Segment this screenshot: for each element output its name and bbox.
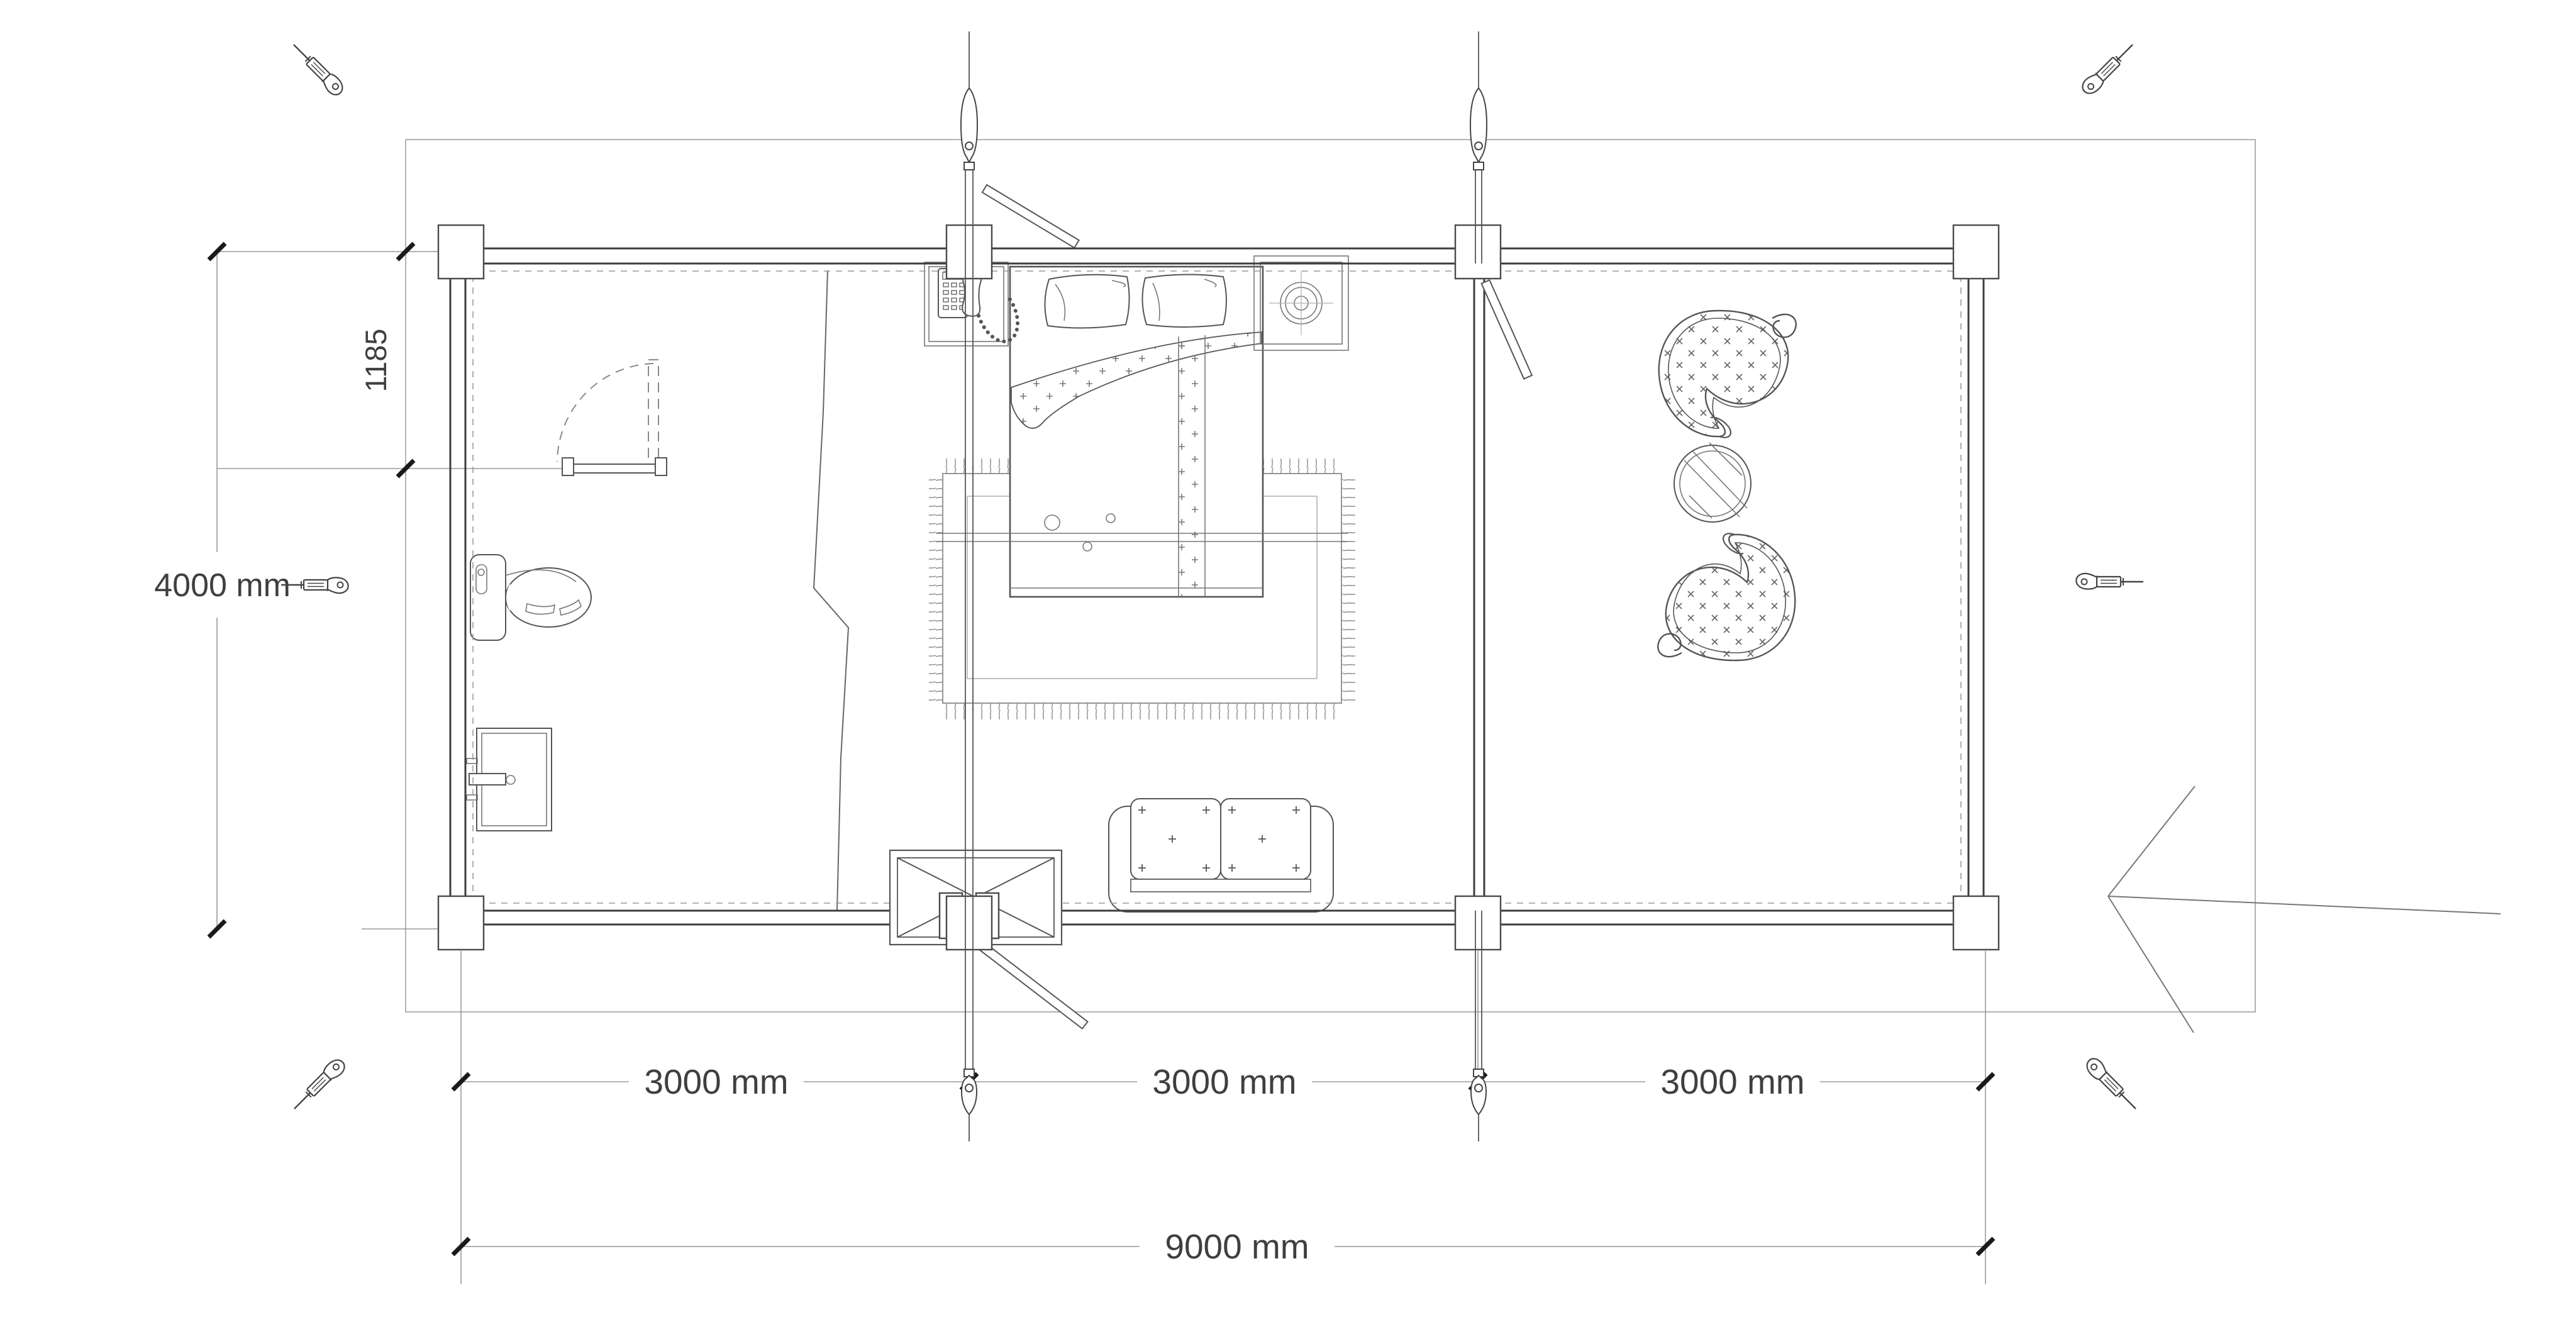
needle-top xyxy=(961,31,977,170)
needle-bottom xyxy=(962,1069,977,1141)
partition-wall xyxy=(1474,264,1484,911)
bed-runner xyxy=(1179,340,1205,597)
telephone xyxy=(938,269,1018,341)
dim-label-bay-1: 3000 mm xyxy=(644,1062,788,1101)
door-leaf-open xyxy=(648,360,658,464)
turnbuckle-icon-top-left xyxy=(288,40,347,98)
round-slatted-table xyxy=(1674,443,1751,522)
dim-label-total-width: 9000 mm xyxy=(1165,1227,1309,1266)
dim-label-door-offset: 1185 xyxy=(359,328,392,392)
lamp-icon xyxy=(1269,271,1333,335)
turnbuckle-icon-top-right xyxy=(2079,39,2138,97)
toilet xyxy=(470,555,591,640)
dim-label-depth: 4000 mm xyxy=(154,567,291,604)
turnbuckle-icon-middle-right xyxy=(2076,574,2143,589)
dim-label-bay-3: 3000 mm xyxy=(1660,1062,1804,1101)
turnbuckle-icon-middle-left xyxy=(281,577,348,593)
washbasin xyxy=(467,728,552,831)
bathroom-door xyxy=(557,360,667,475)
pillow-right xyxy=(1142,274,1226,327)
needle-top xyxy=(1470,31,1487,170)
turnbuckle-icon-bottom-right xyxy=(2083,1055,2141,1114)
dim-label-bay-2: 3000 mm xyxy=(1152,1062,1296,1101)
needle-bottom xyxy=(1471,1069,1486,1141)
shower-screen-zigzag xyxy=(814,270,848,911)
wicker-chair-bottom xyxy=(1658,533,1795,660)
door-swing-arc xyxy=(557,364,653,462)
floor-plan-drawing: 4000 mm 1185 3000 mm 3000 mm 3000 mm 900… xyxy=(0,0,2576,1327)
turnbuckle-icon-bottom-left xyxy=(289,1056,348,1114)
entrance-arrow-icon xyxy=(2108,786,2501,1033)
sofa xyxy=(1109,799,1333,912)
pillow-left xyxy=(1045,275,1129,328)
wicker-chair-top xyxy=(1659,311,1796,438)
bedside-table-with-lamp xyxy=(1254,256,1348,350)
